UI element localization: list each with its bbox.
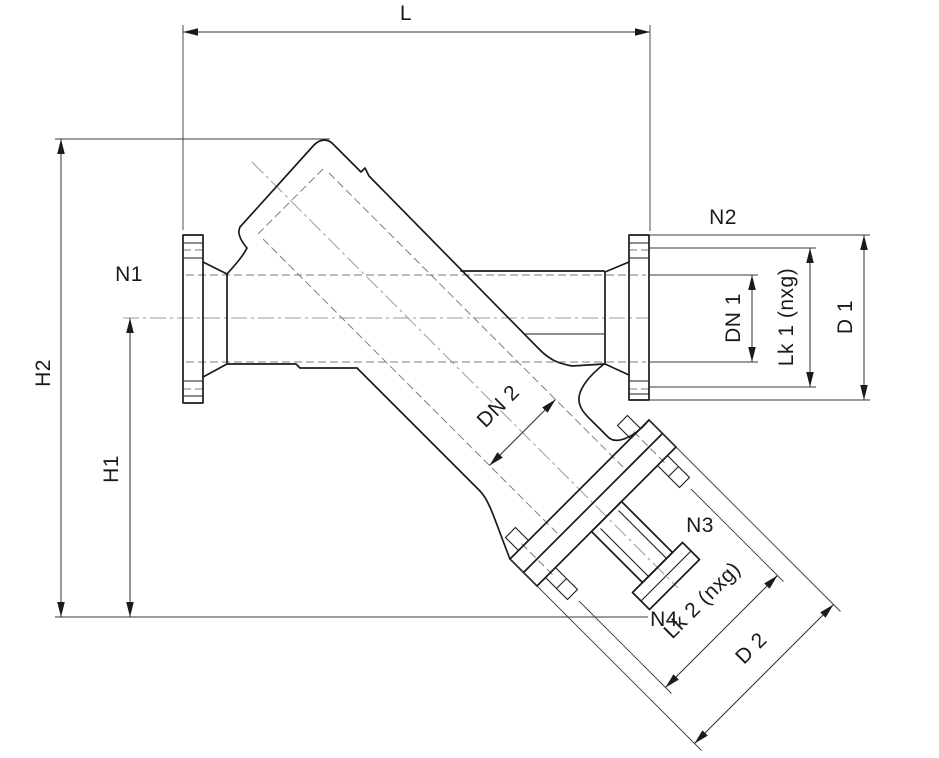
flange-left: [183, 235, 227, 403]
label-length: L: [400, 2, 412, 25]
flange-left-plate: [183, 235, 203, 403]
branch-bore-right-hidden: [329, 173, 623, 467]
technical-drawing-canvas: L N1 N2 N3 N4 H2 H1 DN 1 Lk 1 (nxg) D 1 …: [0, 0, 939, 758]
label-bore2: DN 2: [473, 381, 525, 433]
stud-lower-nut-line: [557, 579, 567, 589]
body-pipe-bottom-left: [227, 364, 357, 368]
label-bolt-circle1: Lk 1 (nxg): [775, 268, 798, 366]
branch-flange-edge-a: [510, 420, 649, 559]
dim-D2: [695, 605, 834, 744]
stud-upper-nut-line: [669, 467, 679, 477]
ext-D2-upper: [649, 420, 841, 612]
label-height-total: H2: [32, 359, 55, 387]
label-height-center: H1: [100, 455, 123, 483]
label-port3: N3: [686, 514, 714, 537]
plug-thread-line2: [619, 511, 667, 559]
branch-flange-boltmark-lower: [522, 544, 555, 577]
flange-left-taper-bottom: [203, 364, 227, 377]
hidden-lines: [183, 168, 666, 576]
body-crotch-right: [579, 364, 649, 440]
label-bore1: DN 1: [722, 293, 745, 343]
dimension-labels: L N1 N2 N3 N4 H2 H1 DN 1 Lk 1 (nxg) D 1 …: [32, 2, 857, 669]
valve-body: [183, 140, 649, 559]
branch-centerline: [252, 162, 678, 588]
flange-left-taper-top: [203, 262, 227, 274]
ext-D2-lower: [510, 559, 702, 751]
branch-flange-boltmark-upper: [634, 432, 667, 465]
label-port2: N2: [709, 206, 737, 229]
flange-right-taper-top: [605, 262, 629, 272]
label-port1: N1: [115, 263, 143, 286]
flange-right-taper-bottom: [605, 364, 629, 375]
plug-thread-line1: [601, 529, 649, 577]
technical-drawing-page: L N1 N2 N3 N4 H2 H1 DN 1 Lk 1 (nxg) D 1 …: [0, 0, 939, 758]
label-outer-dia2: D 2: [731, 628, 771, 668]
label-outer-dia1: D 1: [834, 300, 857, 334]
body-cap-and-upper-wall: [227, 140, 604, 366]
drain-plug: [592, 502, 700, 610]
